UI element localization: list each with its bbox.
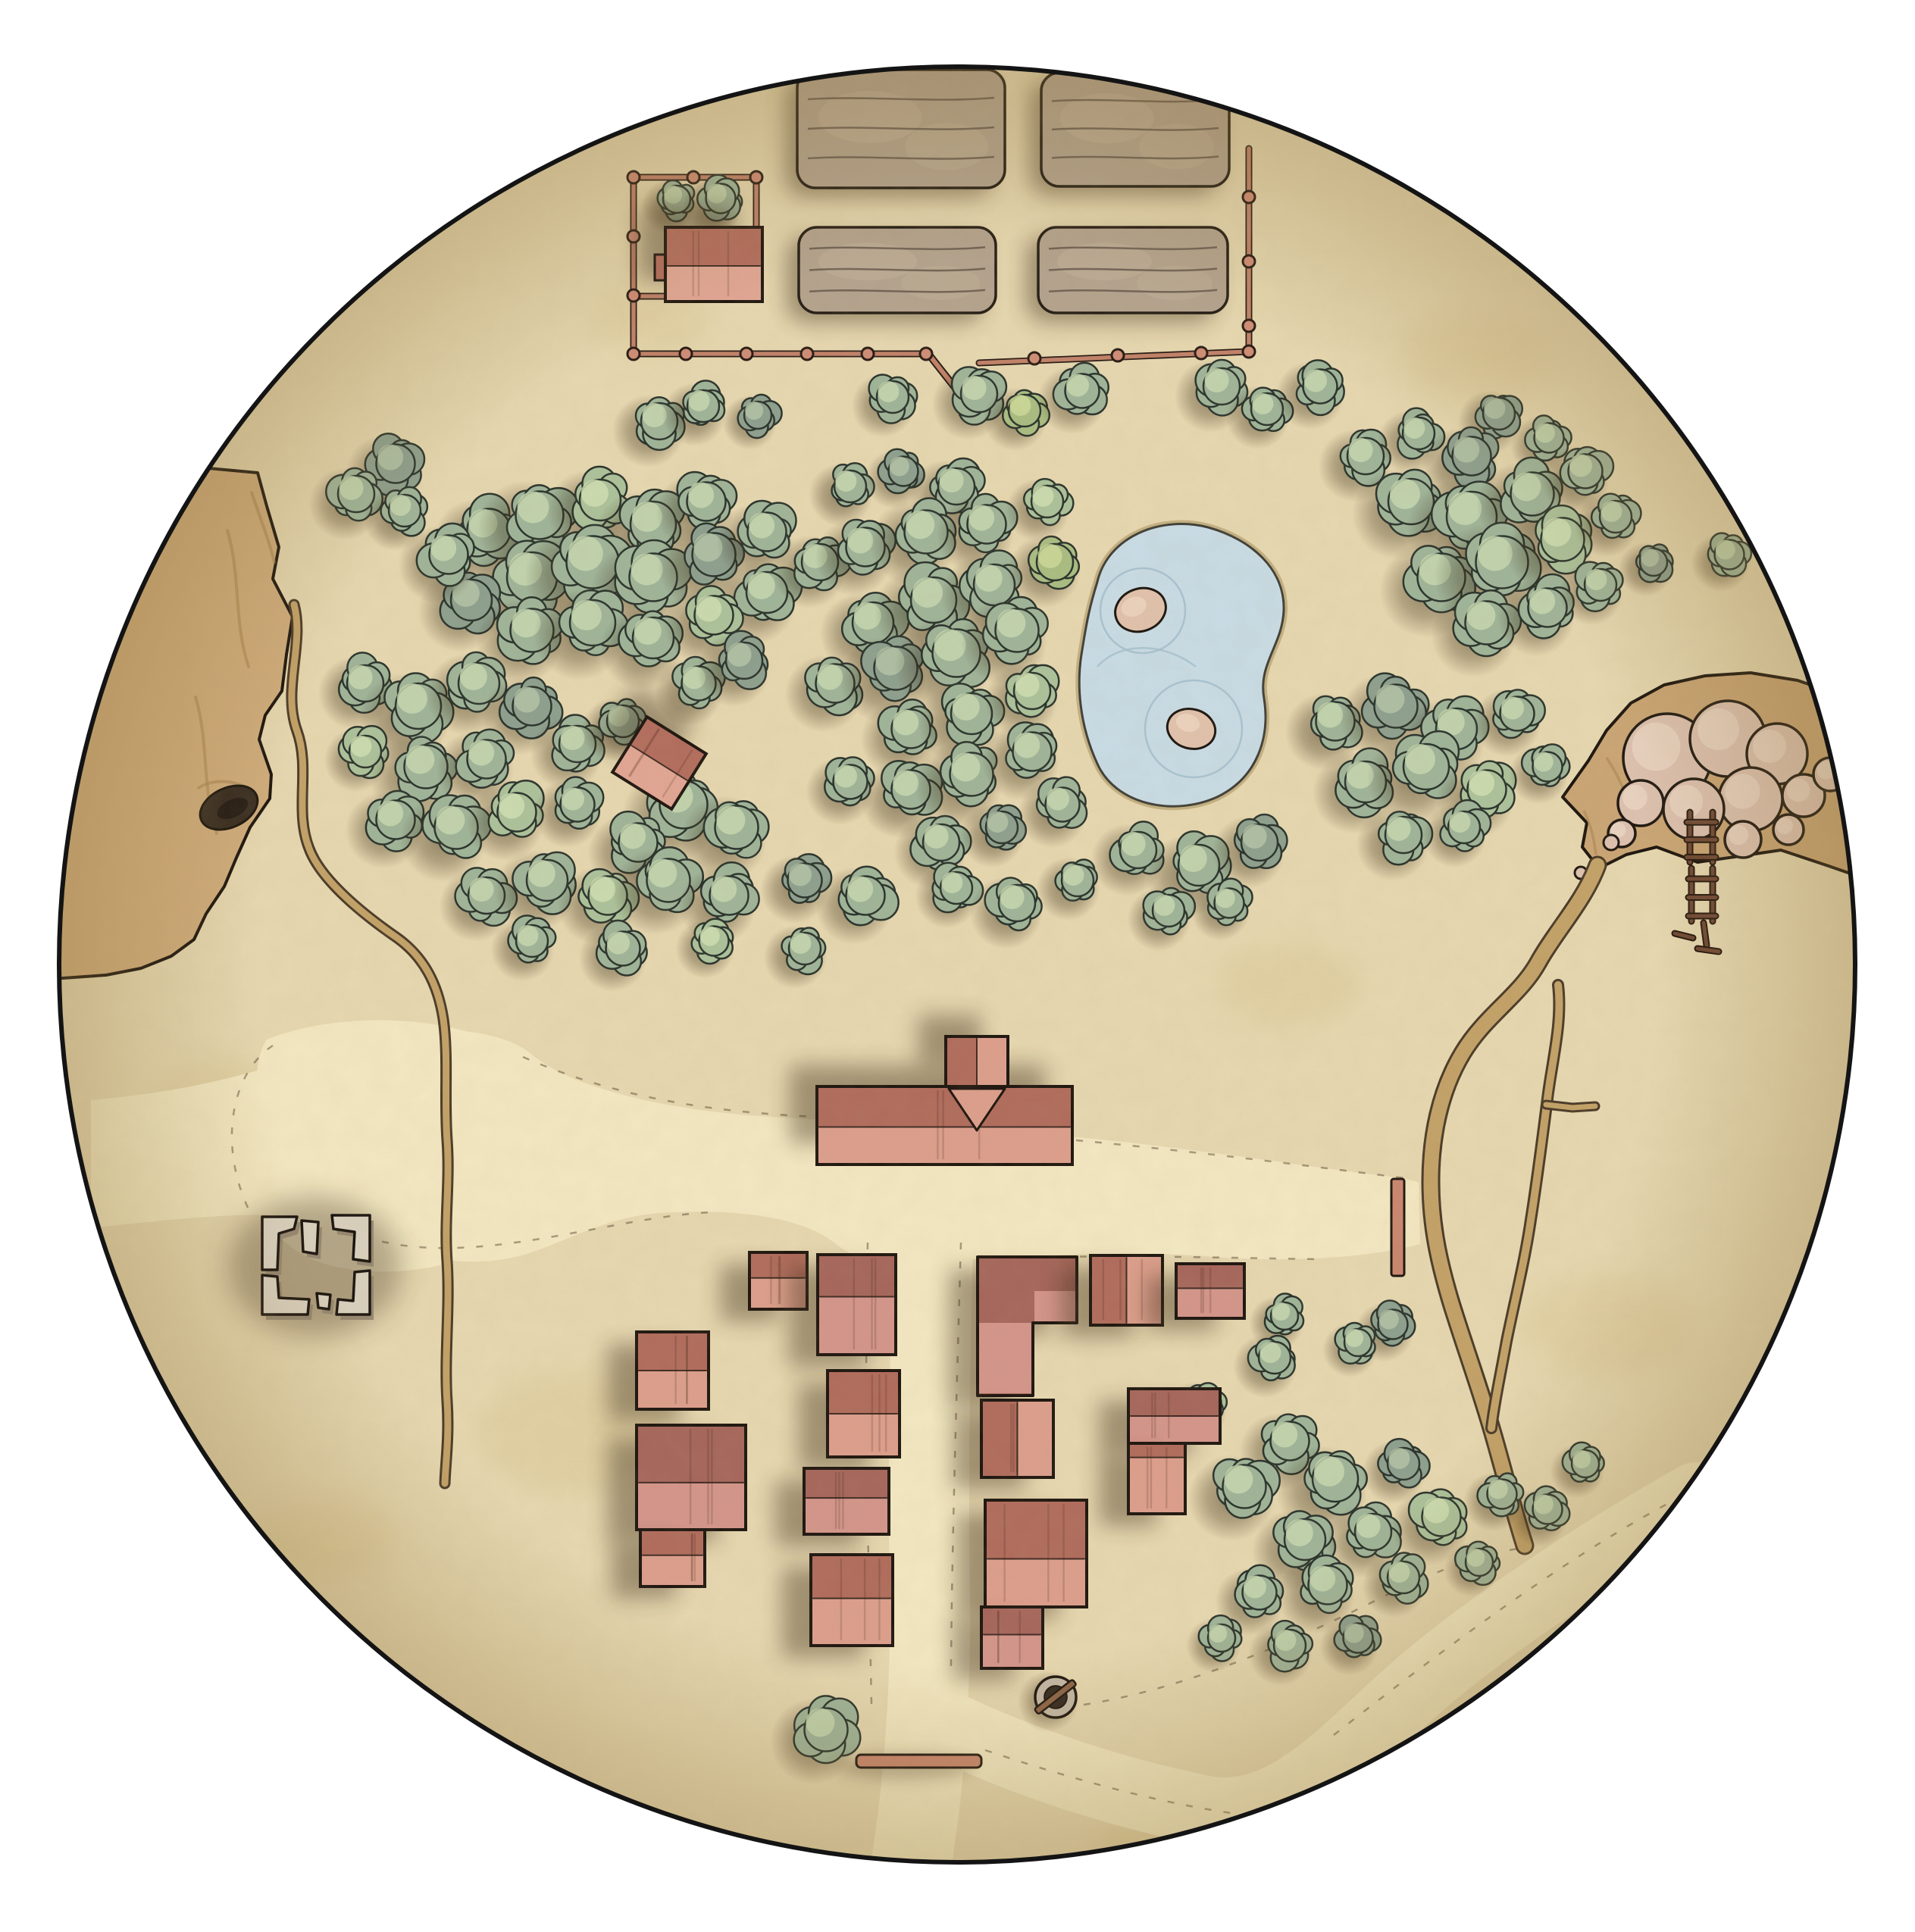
village-map-canvas — [0, 0, 1915, 1932]
boulder — [1846, 791, 1870, 815]
map-inner — [53, 67, 1902, 1891]
village-map — [0, 0, 1915, 1932]
